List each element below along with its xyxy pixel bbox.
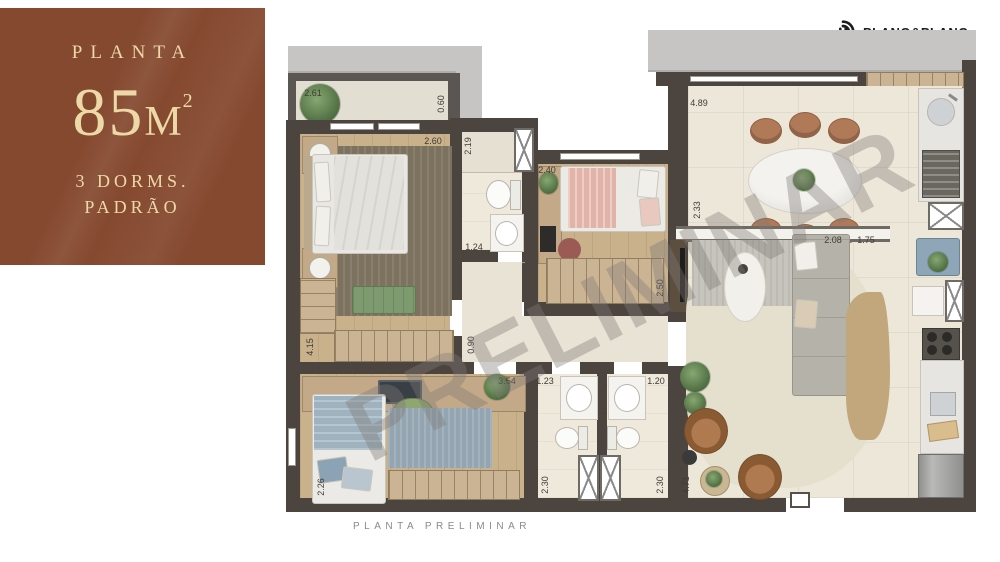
living-plant-1 [680,362,710,392]
bedroom2-wardrobe [546,258,664,304]
master-window-1 [330,123,374,130]
suite-toilet-tank [510,180,521,210]
bedroom3-window [288,428,296,466]
bedroom3-right-wall [524,374,538,512]
hall-bottom-wall-a [286,362,474,374]
footer-caption: PLANTA PRELIMINAR [353,521,531,532]
suite-bath-bottom-wall2 [524,250,538,262]
kitchen-sink [927,98,955,126]
tv [680,248,685,302]
page: PLANTA 85M2 3 DORMS. PADRÃO PLANO&PLANO [0,0,1000,562]
bottom-outer-wall-right [844,498,976,512]
dining-centerpiece [793,169,815,191]
bedroom2-tv [540,226,556,252]
dim-label: 4.71 [681,476,691,494]
bedroom2-blanket [568,168,616,228]
dim-label: 2.33 [692,201,702,219]
right-outer-wall [962,60,976,512]
fridge [918,454,964,498]
bath-a-toilet-tank [578,426,588,450]
bedroom3-rug [388,408,492,468]
cooktop-burner-1 [927,332,937,342]
coffee-table-decor [738,264,748,274]
hall-bottom-wall-b [516,362,552,374]
baths-top-wall-a [580,362,614,374]
stool [682,450,697,465]
master-window-2 [378,123,420,130]
oven [922,150,960,198]
dim-label: 2.50 [655,279,665,297]
master-wardrobe-left [300,278,336,334]
dim-label: 0.60 [436,95,446,113]
suite-sink-basin [495,221,518,246]
laundry-plant [928,252,948,272]
bath-a-basin [566,384,592,412]
cooktop-burner-4 [942,345,952,355]
master-pillow-2 [314,206,331,247]
dim-label: 1.75 [857,235,875,245]
bath-a-shower-door [578,455,599,501]
master-bench [352,286,416,314]
curved-wood-panel [846,292,890,440]
dim-label: 3.54 [498,376,516,386]
dim-label: 2.08 [824,235,842,245]
nightstand-bottom-lamp [308,256,332,280]
dim-label: 0.90 [466,336,476,354]
dim-label: 1.23 [536,376,554,386]
balcony-slab [288,46,482,73]
baths-top-wall-b [642,362,668,374]
bedroom2-plant [539,172,558,194]
dim-label: 2.30 [540,476,550,494]
floor-plan: 2.61 0.60 2.60 4.15 2.19 1.24 2.40 2.50 … [0,0,1000,562]
master-pillow-1 [314,162,332,203]
dim-label: 1.20 [647,376,665,386]
dim-label: 2.61 [304,88,322,98]
master-window-wall [286,120,464,134]
balcony-parapet-left [288,73,296,125]
bedroom3-wardrobe [388,470,520,500]
balcony-parapet-top [288,73,458,81]
bath-b-shower-door [600,455,621,501]
dim-label: 4.89 [690,98,708,108]
dining-chair-1 [750,118,782,144]
bath-b-toilet [616,427,640,449]
cooktop-burner-3 [927,345,937,355]
hall-floor-horizontal [462,316,668,362]
living-window [690,76,858,82]
bedroom2-pillow-1 [637,169,660,199]
dim-label: 2.60 [424,136,442,146]
coffee-table [724,252,766,322]
dim-label: 2.30 [655,476,665,494]
dim-label: 1.24 [465,242,483,252]
sofa-pillow-1 [794,241,819,271]
kitchen-duct [928,202,964,230]
master-bed-headboard [304,156,312,250]
dim-label: 2.26 [316,478,326,496]
sofa-pillow-2 [794,299,818,329]
side-table-plant [706,471,722,487]
suite-shower-door [514,128,534,172]
dim-label: 2.40 [538,165,556,175]
bath-b-basin [614,384,640,412]
entry-door-leaf [790,492,810,508]
master-bed-duvet [334,156,404,250]
dim-label: 4.15 [305,338,315,356]
suite-toilet [486,180,511,209]
cooktop-burner-2 [942,332,952,342]
bedroom3-pillow-2 [341,466,373,491]
bedroom2-window [560,153,640,160]
armchair-2 [738,454,782,500]
dim-label: 2.19 [463,137,473,155]
bedroom2-pillow-2 [639,197,661,227]
dining-chair-3 [828,118,860,144]
master-wardrobe-bottom [334,330,454,362]
living-slab [648,30,976,72]
armchair-1 [684,408,728,454]
laundry-tank [912,286,944,316]
bedroom3-blanket [314,396,382,450]
bath-a-toilet [555,427,579,449]
bedroom2-bottom-wall [524,302,688,316]
dining-chair-2 [789,112,821,138]
laundry-door [945,280,964,322]
kitchen-sink-2 [930,392,956,416]
